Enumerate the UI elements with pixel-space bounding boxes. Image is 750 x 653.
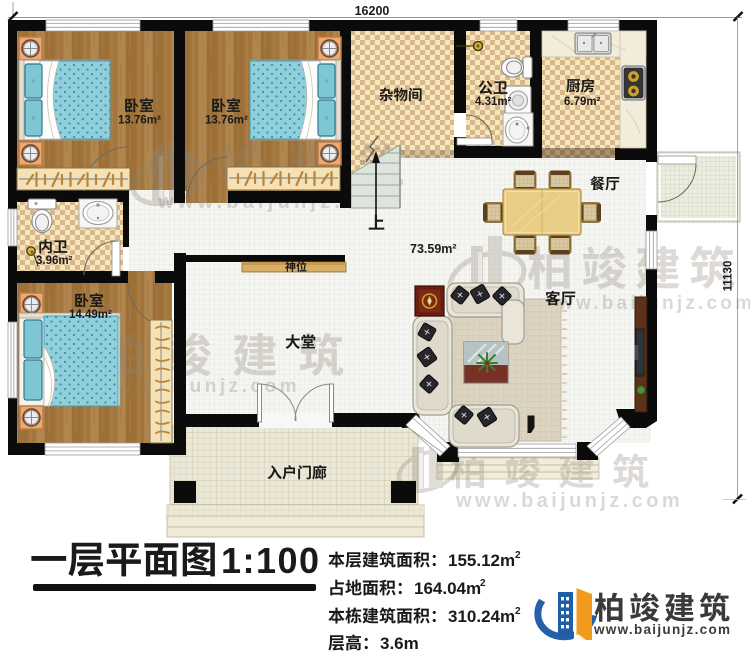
svg-text:155.12m: 155.12m (448, 551, 515, 570)
svg-text:2: 2 (515, 550, 521, 561)
svg-text:3.6m: 3.6m (380, 634, 419, 653)
svg-text:16200: 16200 (355, 4, 390, 18)
svg-text:www.baijunjz.com: www.baijunjz.com (593, 622, 731, 637)
svg-text:4.31m²: 4.31m² (475, 96, 512, 108)
svg-text:310.24m: 310.24m (448, 607, 515, 626)
svg-text:14.49m²: 14.49m² (69, 309, 112, 321)
svg-text:13.76m²: 13.76m² (205, 115, 248, 127)
svg-text:www.baijunjz.com: www.baijunjz.com (455, 490, 683, 512)
svg-text:164.04m: 164.04m (414, 579, 481, 598)
svg-text:1:100: 1:100 (221, 540, 321, 581)
svg-text:73.59m²: 73.59m² (410, 242, 457, 256)
svg-text:6.79m²: 6.79m² (564, 96, 601, 108)
svg-text:13.76m²: 13.76m² (118, 115, 161, 127)
svg-text:11130: 11130 (723, 261, 735, 292)
svg-text:2: 2 (515, 606, 521, 617)
svg-text:3.96m²: 3.96m² (36, 255, 73, 267)
svg-text:2: 2 (480, 578, 486, 589)
